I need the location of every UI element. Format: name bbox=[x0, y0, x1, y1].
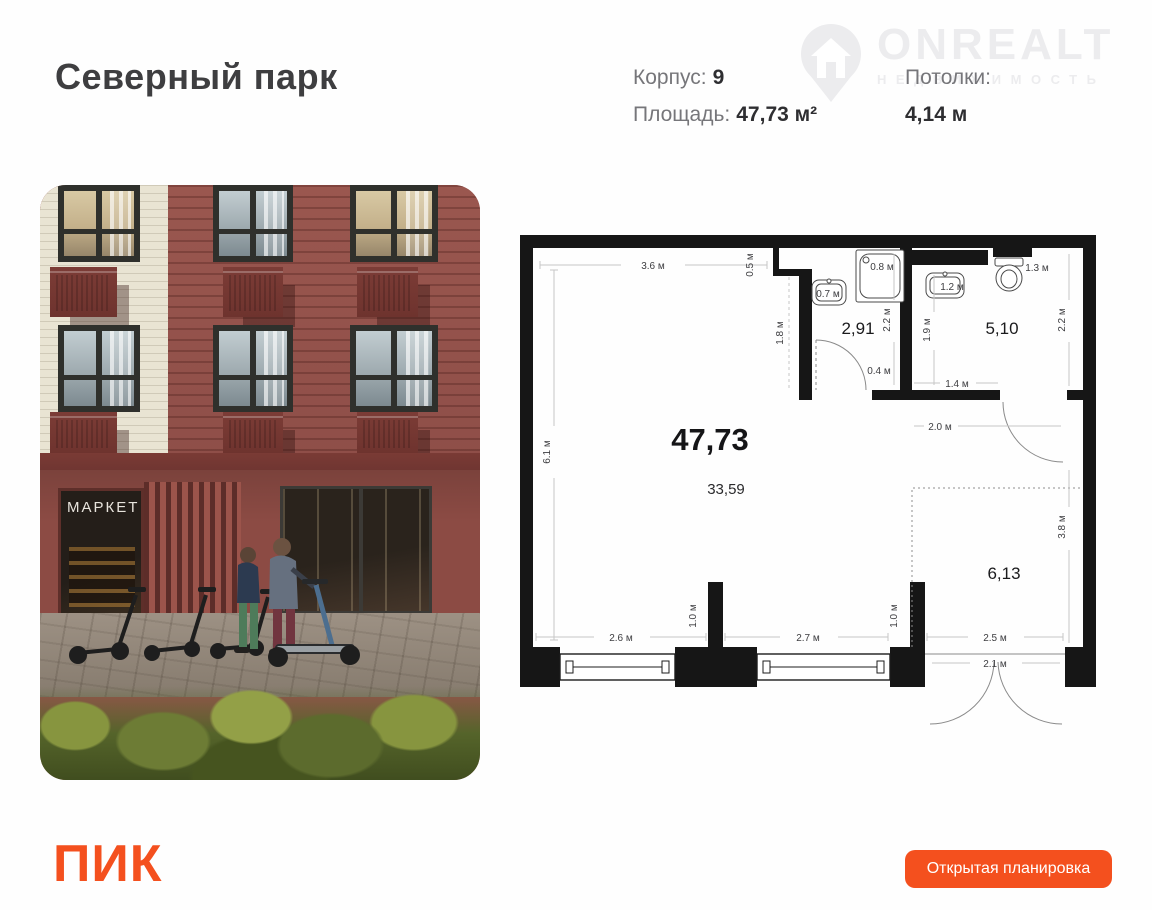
dim-zone-height: 3.8 м bbox=[1057, 515, 1068, 539]
balcony-box bbox=[223, 267, 283, 317]
dim-window1: 2.6 м bbox=[609, 633, 633, 644]
window bbox=[58, 185, 140, 262]
person-2 bbox=[269, 538, 314, 655]
dim-sink2: 1.2 м bbox=[940, 282, 964, 293]
dim-right-top: 2.2 м bbox=[1057, 308, 1068, 332]
dim-window2: 2.7 м bbox=[796, 633, 820, 644]
dim-inner-wall: 1.8 м bbox=[775, 321, 786, 345]
dim-bath2-width: 1.4 м bbox=[945, 379, 969, 390]
dim-left: 6.1 м bbox=[542, 440, 553, 464]
ceiling-value: 4,14 м bbox=[905, 103, 967, 127]
corpus-value: 9 bbox=[713, 66, 725, 89]
onrealt-pin-icon bbox=[795, 22, 867, 104]
listing-card: ONREALT НЕДВИЖИМОСТЬ Северный парк Корпу… bbox=[0, 0, 1152, 910]
dim-top: 3.6 м bbox=[641, 261, 665, 272]
spec-corpus: Корпус:9 bbox=[633, 66, 724, 90]
plan-walls bbox=[520, 235, 1096, 687]
dim-shower: 0.8 м bbox=[870, 262, 894, 273]
area-main: 33,59 bbox=[707, 481, 745, 498]
balcony-box bbox=[223, 412, 283, 454]
dim-door-gap: 0.4 м bbox=[867, 366, 891, 377]
dim-toilet: 1.3 м bbox=[1025, 263, 1049, 274]
building-photo: МАРКЕТ bbox=[40, 185, 480, 780]
floor-plan-drawing: 3.6 м 0.5 м 1.8 м 6.1 м 0.7 м 0.8 м 1.2 … bbox=[520, 230, 1096, 730]
area-label: Площадь: bbox=[633, 103, 730, 126]
balcony-box bbox=[357, 412, 418, 454]
pik-logo: ПИК bbox=[53, 834, 163, 894]
people-and-scooters-illustration bbox=[40, 525, 480, 685]
page-title: Северный парк bbox=[55, 56, 338, 98]
spec-area: Площадь:47,73 м² bbox=[633, 103, 817, 127]
window bbox=[350, 325, 438, 412]
balcony-box bbox=[50, 267, 117, 317]
open-plan-button[interactable]: Открытая планировка bbox=[905, 850, 1112, 888]
area-zone: 6,13 bbox=[987, 564, 1020, 583]
corpus-label: Корпус: bbox=[633, 66, 707, 89]
market-sign: МАРКЕТ bbox=[67, 499, 139, 516]
person-1 bbox=[234, 547, 260, 653]
dim-pier2: 1.0 м bbox=[889, 604, 900, 628]
dim-bath1-depth: 2.2 м bbox=[882, 308, 893, 332]
watermark-brand: ONREALT bbox=[877, 22, 1114, 68]
window bbox=[213, 185, 293, 262]
window bbox=[213, 325, 293, 412]
ceiling-label: Потолки: bbox=[905, 66, 991, 90]
area-bath1: 2,91 bbox=[841, 319, 874, 338]
window bbox=[350, 185, 438, 262]
balcony-box bbox=[50, 412, 117, 454]
dim-entry: 2.5 м bbox=[983, 633, 1007, 644]
area-total: 47,73 bbox=[671, 422, 749, 457]
floor-plan: 3.6 м 0.5 м 1.8 м 6.1 м 0.7 м 0.8 м 1.2 … bbox=[520, 230, 1096, 730]
area-bath2: 5,10 bbox=[985, 319, 1018, 338]
onrealt-watermark: ONREALT НЕДВИЖИМОСТЬ bbox=[795, 22, 1114, 104]
dim-pier1: 1.0 м bbox=[688, 604, 699, 628]
dim-bath2-left: 1.9 м bbox=[922, 318, 933, 342]
dim-sink1: 0.7 м bbox=[816, 289, 840, 300]
bushes bbox=[40, 673, 480, 780]
dim-niche: 0.5 м bbox=[745, 253, 756, 277]
window bbox=[58, 325, 140, 412]
dim-entry-door: 2.1 м bbox=[983, 659, 1007, 670]
area-value: 47,73 м² bbox=[736, 103, 817, 126]
balcony-box bbox=[357, 267, 418, 317]
dim-hall: 2.0 м bbox=[928, 422, 952, 433]
